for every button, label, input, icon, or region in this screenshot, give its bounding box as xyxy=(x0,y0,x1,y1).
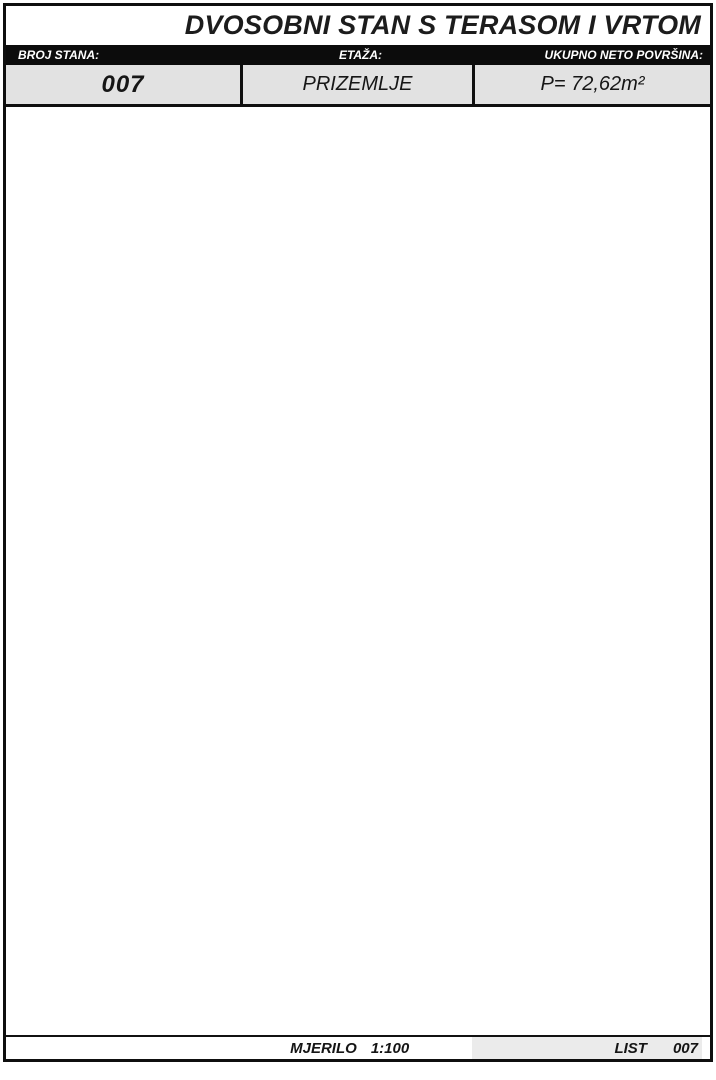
scale-value: 1:100 xyxy=(371,1040,409,1057)
label-povrsina: UKUPNO NETO POVRŠINA: xyxy=(478,48,710,62)
page-border: MJERILO 1:100 LIST 007 xyxy=(3,3,713,1062)
sheet-number: 007 xyxy=(673,1040,698,1057)
sheet-header: DVOSOBNI STAN S TERASOM I VRTOM xyxy=(6,5,710,45)
scale-label: MJERILO xyxy=(290,1040,357,1057)
header-value-row: 007 PRIZEMLJE P= 72,62m² xyxy=(6,65,710,107)
value-floor: PRIZEMLJE xyxy=(243,65,475,104)
footer-title-block: MJERILO 1:100 LIST 007 xyxy=(6,1035,710,1059)
plan-sheet: vrt P=33x0.1=3,30m2 Terasa/lođa P=5,55x0… xyxy=(0,0,716,1080)
label-broj-stana: BROJ STANA: xyxy=(6,48,243,62)
value-net-area: P= 72,62m² xyxy=(475,65,710,104)
sheet-indicator: LIST 007 xyxy=(614,1037,698,1059)
value-apartment-number: 007 xyxy=(6,65,243,104)
scale-indicator: MJERILO 1:100 xyxy=(290,1037,409,1059)
page-title: DVOSOBNI STAN S TERASOM I VRTOM xyxy=(185,10,701,41)
sheet-label: LIST xyxy=(614,1040,647,1057)
header-label-bar: BROJ STANA: ETAŽA: UKUPNO NETO POVRŠINA: xyxy=(6,45,710,65)
label-etaza: ETAŽA: xyxy=(243,48,478,62)
